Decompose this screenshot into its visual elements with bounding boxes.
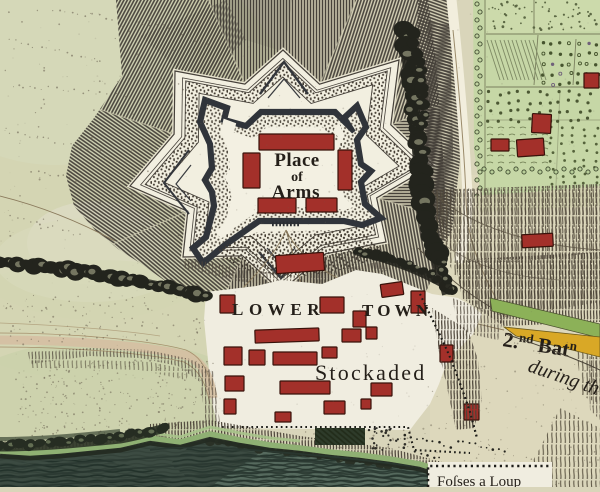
svg-text:LOWER: LOWER: [232, 300, 325, 319]
svg-text:Place: Place: [274, 150, 319, 171]
svg-text:TOWN: TOWN: [362, 301, 432, 320]
svg-text:Arms: Arms: [272, 182, 321, 203]
svg-text:Stockaded: Stockaded: [315, 360, 426, 385]
svg-text:Foſses a Loup: Foſses a Loup: [437, 474, 521, 487]
